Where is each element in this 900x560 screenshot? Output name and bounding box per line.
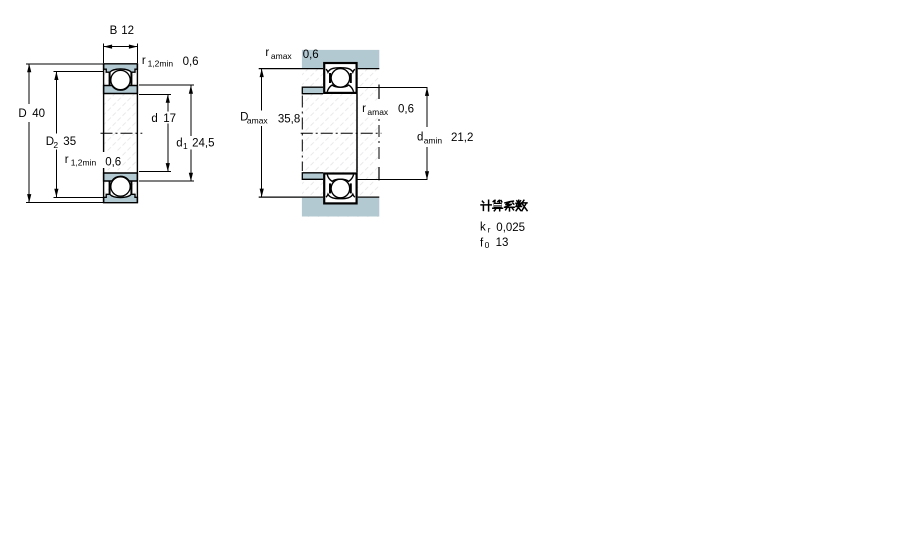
svg-text:1,2min: 1,2min xyxy=(148,59,174,69)
svg-text:40: 40 xyxy=(32,108,45,120)
svg-text:35,8: 35,8 xyxy=(278,113,300,125)
svg-text:r: r xyxy=(265,47,269,59)
svg-text:1: 1 xyxy=(183,141,188,151)
svg-text:r: r xyxy=(142,55,146,67)
svg-text:B: B xyxy=(110,25,118,37)
svg-text:D: D xyxy=(18,108,26,120)
svg-text:d: d xyxy=(151,113,157,125)
svg-text:13: 13 xyxy=(496,237,509,249)
svg-text:amax: amax xyxy=(367,107,389,117)
svg-text:r: r xyxy=(488,224,491,234)
svg-text:0,6: 0,6 xyxy=(105,156,121,168)
svg-text:0: 0 xyxy=(485,240,490,250)
svg-text:1,2min: 1,2min xyxy=(71,158,97,168)
svg-text:r: r xyxy=(65,154,69,166)
svg-text:k: k xyxy=(480,222,486,234)
svg-text:d: d xyxy=(417,132,423,144)
svg-text:21,2: 21,2 xyxy=(451,132,473,144)
svg-text:2: 2 xyxy=(53,140,58,150)
svg-text:r: r xyxy=(362,103,366,115)
svg-text:0,6: 0,6 xyxy=(398,103,414,115)
svg-text:amax: amax xyxy=(271,51,293,61)
svg-text:d: d xyxy=(176,137,182,149)
svg-text:0,6: 0,6 xyxy=(303,49,319,61)
svg-text:17: 17 xyxy=(163,113,176,125)
svg-text:12: 12 xyxy=(121,25,134,37)
svg-text:0,025: 0,025 xyxy=(496,222,525,234)
svg-text:35: 35 xyxy=(63,136,76,148)
svg-text:0,6: 0,6 xyxy=(183,56,199,68)
svg-text:amin: amin xyxy=(424,136,443,146)
svg-text:24,5: 24,5 xyxy=(192,137,214,149)
svg-text:amax: amax xyxy=(247,116,269,126)
svg-text:f: f xyxy=(480,237,484,249)
